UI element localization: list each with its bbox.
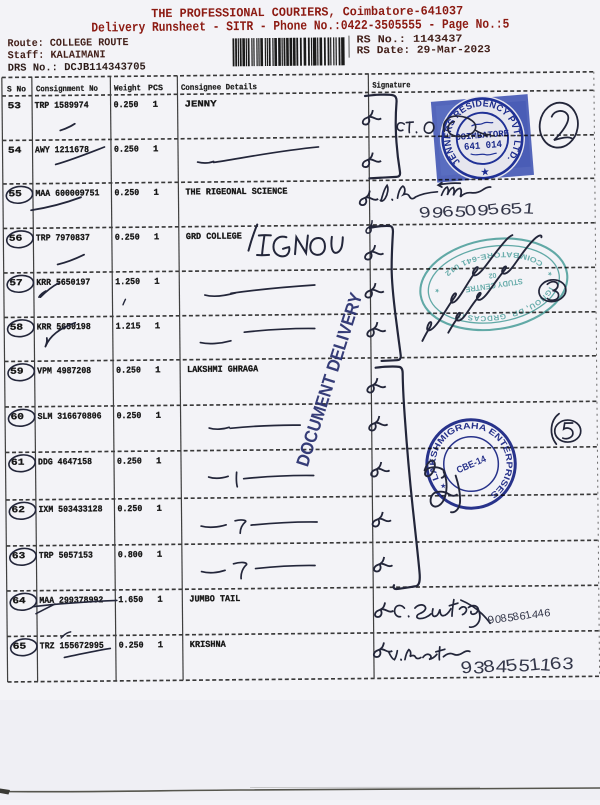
svg-text:KRISHNA: KRISHNA bbox=[190, 640, 227, 650]
svg-text:57: 57 bbox=[9, 278, 22, 288]
svg-text:TRP 5057153: TRP 5057153 bbox=[39, 550, 93, 561]
svg-text:Signature: Signature bbox=[372, 80, 410, 90]
svg-text:KRR 5650197: KRR 5650197 bbox=[36, 277, 90, 288]
svg-text:MAA 600009751: MAA 600009751 bbox=[35, 188, 100, 199]
svg-text:SLM 316670806: SLM 316670806 bbox=[38, 411, 102, 422]
svg-text:1.215: 1.215 bbox=[116, 321, 141, 331]
svg-text:64: 64 bbox=[12, 596, 26, 606]
svg-text:02: 02 bbox=[488, 271, 497, 279]
svg-text:Weight: Weight bbox=[114, 83, 141, 93]
svg-text:S No: S No bbox=[7, 85, 26, 94]
svg-text:1: 1 bbox=[155, 365, 161, 375]
svg-text:1.250: 1.250 bbox=[115, 277, 140, 287]
svg-text:THE RIGEONAL SCIENCE: THE RIGEONAL SCIENCE bbox=[185, 187, 288, 198]
svg-text:PCS: PCS bbox=[148, 84, 163, 93]
svg-text:AWY 1211678: AWY 1211678 bbox=[35, 145, 89, 156]
svg-text:1: 1 bbox=[154, 277, 160, 287]
svg-text:65: 65 bbox=[13, 642, 26, 652]
svg-text:0.250: 0.250 bbox=[114, 188, 139, 198]
svg-text:Staff: KALAIMANI: Staff: KALAIMANI bbox=[8, 49, 106, 62]
svg-text:0.250: 0.250 bbox=[117, 504, 142, 514]
svg-text:TRZ 155672995: TRZ 155672995 bbox=[40, 641, 104, 652]
svg-text:59: 59 bbox=[10, 367, 23, 377]
svg-text:RS Date: 29-Mar-2023: RS Date: 29-Mar-2023 bbox=[357, 44, 491, 57]
svg-text:Consignee Details: Consignee Details bbox=[181, 82, 257, 93]
svg-text:JUMBO TAIL: JUMBO TAIL bbox=[189, 594, 240, 604]
svg-text:1: 1 bbox=[155, 321, 161, 331]
svg-text:1: 1 bbox=[158, 640, 164, 650]
svg-text:53: 53 bbox=[8, 101, 21, 111]
svg-text:VPM 4987208: VPM 4987208 bbox=[37, 366, 91, 377]
svg-text:1: 1 bbox=[153, 100, 159, 110]
svg-text:0.250: 0.250 bbox=[115, 232, 140, 242]
svg-text:1: 1 bbox=[156, 411, 162, 421]
svg-text:1: 1 bbox=[153, 144, 159, 154]
svg-text:58: 58 bbox=[10, 323, 23, 333]
svg-text:★: ★ bbox=[434, 286, 440, 294]
svg-text:0.250: 0.250 bbox=[119, 640, 144, 650]
svg-text:★: ★ bbox=[547, 269, 553, 277]
svg-text:0.250: 0.250 bbox=[117, 456, 142, 466]
svg-text:1.650: 1.650 bbox=[118, 595, 143, 605]
svg-text:Consignment No: Consignment No bbox=[36, 84, 98, 95]
svg-text:0.800: 0.800 bbox=[118, 550, 143, 560]
svg-text:61: 61 bbox=[11, 458, 25, 468]
svg-text:63: 63 bbox=[12, 551, 25, 561]
svg-text:62: 62 bbox=[11, 505, 24, 515]
svg-text:LAKSHMI GHRAGA: LAKSHMI GHRAGA bbox=[187, 364, 259, 375]
svg-text:1: 1 bbox=[157, 595, 163, 605]
svg-text:1: 1 bbox=[156, 456, 162, 466]
svg-text:DRS No.: DCJB114343705: DRS No.: DCJB114343705 bbox=[8, 61, 146, 74]
svg-text:TRP 1589974: TRP 1589974 bbox=[35, 100, 90, 111]
svg-text:GRD COLLEGE: GRD COLLEGE bbox=[186, 231, 243, 242]
svg-text:DDG 4647158: DDG 4647158 bbox=[38, 457, 92, 468]
svg-text:0.250: 0.250 bbox=[117, 411, 142, 421]
svg-text:IXM 503433128: IXM 503433128 bbox=[38, 504, 102, 515]
svg-text:JENNY: JENNY bbox=[185, 99, 218, 109]
svg-text:1: 1 bbox=[154, 232, 160, 242]
svg-text:1: 1 bbox=[156, 504, 162, 514]
svg-text:1: 1 bbox=[157, 550, 163, 560]
svg-text:★: ★ bbox=[440, 482, 446, 490]
svg-text:0.250: 0.250 bbox=[116, 365, 141, 375]
svg-text:1: 1 bbox=[153, 188, 159, 198]
svg-text:60: 60 bbox=[11, 412, 24, 422]
svg-text:56: 56 bbox=[9, 234, 22, 244]
svg-text:0.250: 0.250 bbox=[114, 100, 139, 110]
svg-text:Route: COLLEGE ROUTE: Route: COLLEGE ROUTE bbox=[7, 37, 128, 50]
svg-text:0.250: 0.250 bbox=[114, 144, 139, 154]
svg-text:55: 55 bbox=[8, 189, 21, 199]
svg-text:TRP 7970837: TRP 7970837 bbox=[36, 233, 90, 244]
svg-text:54: 54 bbox=[8, 146, 22, 156]
